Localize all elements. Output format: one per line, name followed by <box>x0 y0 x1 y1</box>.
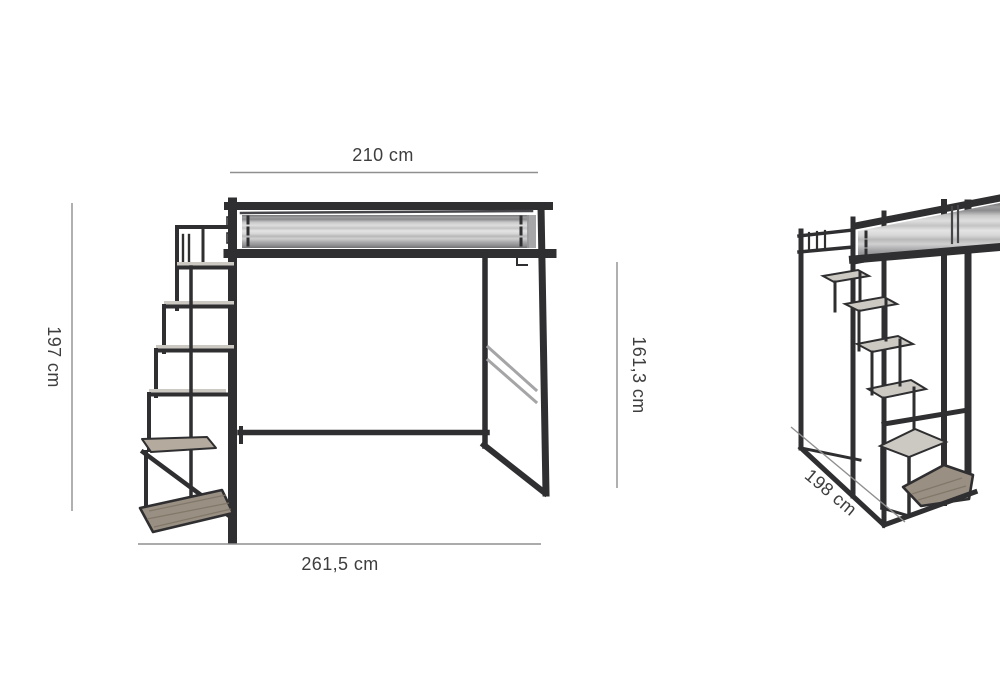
dimension-label-left: 197 cm <box>44 326 64 387</box>
frame-back-rail <box>241 211 532 213</box>
tread-2-top <box>164 301 234 305</box>
wood-step <box>142 437 216 452</box>
mattress-end-shade <box>527 215 536 248</box>
front-staircase <box>140 227 234 532</box>
side-view <box>799 198 1000 525</box>
side-tread-4 <box>868 380 926 398</box>
dimension-right-height: 161,3 cm <box>617 262 649 488</box>
side-under-rail <box>884 410 968 424</box>
dimension-top-width: 210 cm <box>230 145 538 173</box>
side-staircase <box>823 270 973 516</box>
front-bed-platform <box>227 206 552 265</box>
mattress <box>242 215 529 248</box>
dimension-left-height: 197 cm <box>44 203 72 511</box>
dimension-label-right: 161,3 cm <box>629 336 649 413</box>
dimension-bottom-width: 261,5 cm <box>138 544 541 574</box>
post-right-front <box>541 206 546 493</box>
tread-1-top <box>177 262 234 266</box>
diagram-page: 210 cm 197 cm 161,3 cm 261,5 cm 198 cm <box>0 0 1000 680</box>
bracket <box>517 258 527 265</box>
tread-3-top <box>156 345 234 349</box>
side-corner-step <box>880 429 946 457</box>
side-brace-2 <box>488 360 536 402</box>
diagram-canvas: 210 cm 197 cm 161,3 cm 261,5 cm 198 cm <box>0 0 1000 680</box>
side-brace-1 <box>488 347 536 390</box>
side-tread-1 <box>823 270 869 282</box>
dimension-label-bottom: 261,5 cm <box>301 554 378 574</box>
tread-4-top <box>149 389 226 393</box>
front-view <box>140 202 552 540</box>
dimension-label-top: 210 cm <box>352 145 413 165</box>
side-bottom-edge <box>484 445 545 493</box>
